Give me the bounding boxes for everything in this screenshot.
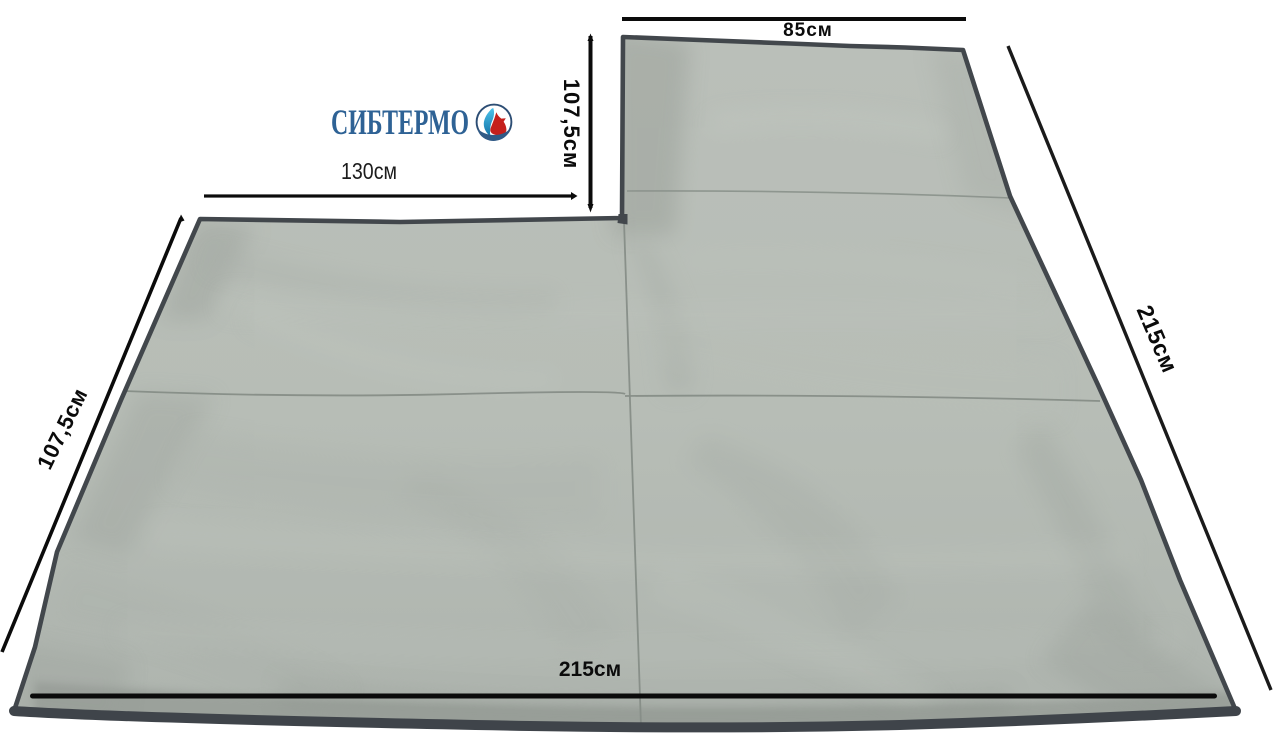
svg-text:107,5см: 107,5см (559, 79, 584, 170)
svg-text:85см: 85см (783, 20, 833, 41)
svg-text:215см: 215см (559, 658, 621, 681)
svg-text:107,5см: 107,5см (32, 384, 93, 473)
svg-text:130см: 130см (341, 158, 397, 184)
svg-text:СИБТЕРМО: СИБТЕРМО (331, 102, 469, 142)
